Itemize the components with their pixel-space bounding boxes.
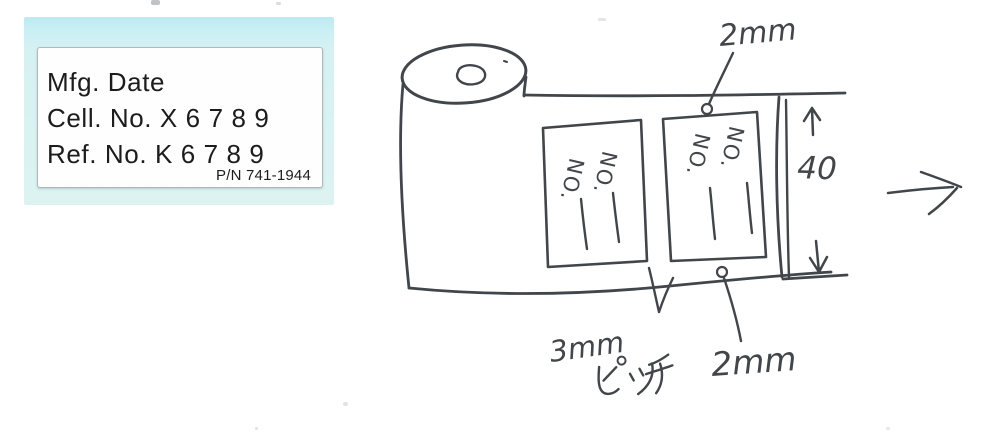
tape-roll-sketch: NO. NO. NO. NO. 2mm 40 3mm ピッチ 2mm (0, 0, 982, 444)
roll-side-edge (401, 84, 409, 288)
feed-arrow-barb-upper (921, 172, 961, 187)
katakana-chi-stroke (648, 355, 669, 365)
top-margin-dim-label: 2mm (718, 12, 798, 54)
roll-core-hole (457, 65, 485, 84)
width-dim-arrow-up (804, 108, 820, 135)
label2-no-line-2 (747, 183, 752, 233)
roll-dot-mark (504, 61, 507, 62)
tape-top-edge (524, 93, 845, 96)
label1-no-line-1 (581, 199, 587, 249)
label2-no-text-2: NO. (715, 124, 748, 172)
tape-right-edge (777, 97, 782, 277)
roll-end-ellipse (400, 41, 528, 108)
pitch-pointer-check (649, 268, 673, 312)
label1-no-text-2: NO. (588, 149, 621, 197)
feed-arrow-shaft (888, 187, 953, 193)
top-margin-marker (702, 104, 712, 114)
feed-direction-arrow (888, 172, 961, 214)
roll-tangent-edge (524, 77, 526, 96)
bottom-margin-leader (724, 278, 741, 341)
label2-no-text-1: NO. (681, 131, 714, 179)
tape-bottom-edge (409, 272, 831, 294)
tape-width-dim-label: 40 (797, 150, 838, 187)
bottom-margin-marker (717, 267, 727, 277)
label2-no-line-1 (710, 188, 715, 239)
width-dim-arrow-down (810, 241, 827, 272)
scan-page: Mfg. Date Cell. No. X 6 7 8 9 Ref. No. K… (0, 0, 982, 444)
label1-no-text-1: NO. (555, 156, 588, 204)
pitch-value-label: 3mm (547, 325, 626, 369)
label1-no-line-2 (613, 193, 619, 242)
feed-arrow-barb-lower (929, 188, 957, 214)
width-dim-line (786, 100, 789, 277)
bottom-margin-dim-label: 2mm (710, 339, 798, 384)
